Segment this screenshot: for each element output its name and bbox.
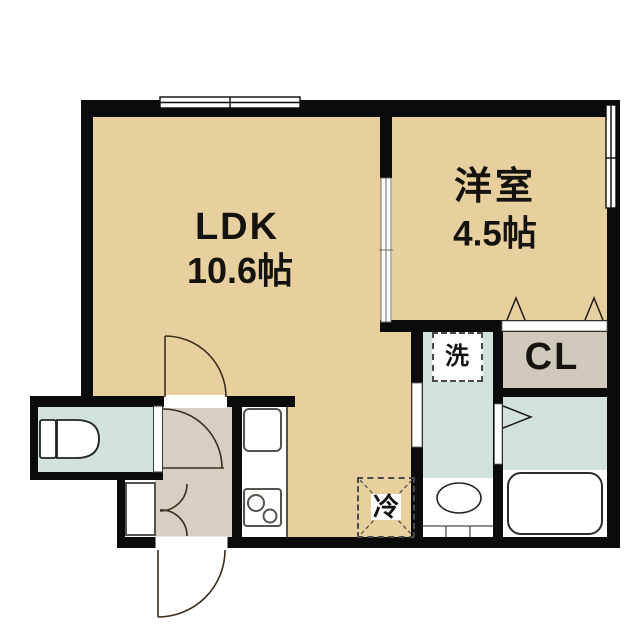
window-top	[160, 97, 300, 108]
window-east	[606, 105, 616, 208]
western-room-label: 洋室	[454, 168, 536, 206]
storage-door-arc-top	[160, 484, 187, 511]
stove-burner-2	[264, 510, 277, 523]
closet-opening	[502, 321, 607, 331]
washroom-door	[412, 383, 422, 447]
entrance-doorway-gap	[156, 537, 228, 550]
ldk-size-label: 10.6帖	[187, 253, 293, 289]
washbasin	[437, 483, 481, 513]
toilet-tank	[40, 420, 56, 458]
closet-folding-door-right	[585, 298, 603, 320]
closet-label: CL	[525, 338, 580, 376]
toilet-doorway	[154, 406, 163, 472]
western-room-size-label: 4.5帖	[453, 217, 537, 252]
sliding-door-western	[379, 178, 393, 322]
kitchen-sink	[244, 409, 281, 451]
bathroom-folding-door	[503, 406, 531, 428]
closet-folding-door-left	[507, 298, 525, 320]
storage-door-arc-bottom	[160, 510, 187, 536]
floor-plan: LDK 10.6帖 洋室 4.5帖 CL 洗 冷	[0, 0, 640, 640]
ldk-door-arc	[165, 336, 226, 397]
toilet-bowl	[57, 420, 99, 458]
ldk-doorway-gap	[164, 395, 227, 408]
stove-burner-1	[248, 495, 264, 511]
refrigerator-label: 冷	[371, 494, 401, 520]
entrance-door-arc	[158, 550, 225, 617]
fixtures-overlay	[0, 0, 640, 640]
bathtub	[508, 473, 602, 534]
ldk-room-label: LDK	[195, 208, 279, 246]
washing-machine-label: 洗	[443, 345, 471, 369]
toilet-door-arc	[163, 409, 222, 468]
bathroom-doorway	[495, 404, 503, 464]
